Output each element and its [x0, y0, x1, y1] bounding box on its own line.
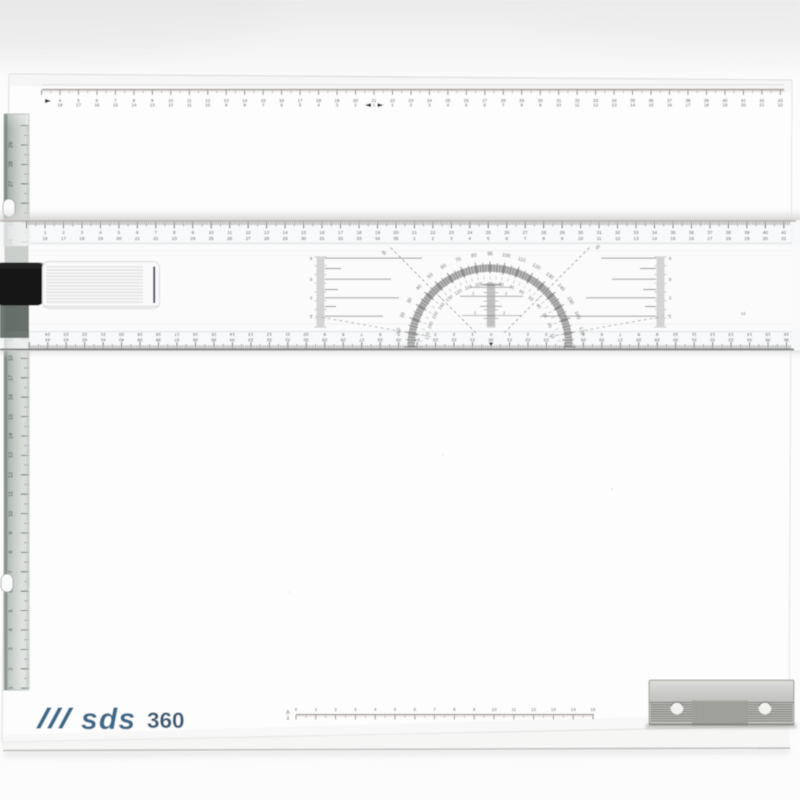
svg-text:28: 28 — [636, 338, 642, 343]
svg-text:3: 3 — [81, 230, 84, 235]
svg-text:2: 2 — [669, 314, 672, 319]
svg-text:6: 6 — [379, 332, 382, 337]
svg-text:x2: x2 — [741, 311, 746, 316]
svg-text:9: 9 — [191, 230, 194, 235]
svg-text:10: 10 — [673, 332, 679, 337]
svg-text:21: 21 — [100, 332, 106, 337]
svg-text:8: 8 — [173, 230, 176, 235]
svg-text:2: 2 — [9, 668, 15, 671]
svg-text:6: 6 — [600, 332, 603, 337]
svg-text:30: 30 — [673, 338, 679, 343]
svg-text:23: 23 — [63, 332, 69, 337]
svg-text:20: 20 — [741, 103, 747, 108]
svg-text:41: 41 — [100, 338, 106, 343]
svg-text:19: 19 — [98, 236, 104, 241]
svg-text:31: 31 — [691, 338, 697, 343]
svg-text:12: 12 — [593, 103, 599, 108]
svg-text:18: 18 — [79, 236, 85, 241]
svg-text:29: 29 — [654, 338, 660, 343]
svg-text:3: 3 — [434, 332, 437, 337]
svg-text:6: 6 — [505, 236, 508, 241]
svg-text:21: 21 — [759, 103, 765, 108]
svg-text:11: 11 — [285, 332, 290, 337]
svg-text:22: 22 — [451, 338, 457, 343]
svg-text:20: 20 — [763, 236, 769, 241]
svg-text:8: 8 — [310, 277, 313, 282]
svg-text:14: 14 — [9, 433, 15, 439]
svg-text:21: 21 — [507, 338, 513, 343]
svg-text:20: 20 — [116, 236, 122, 241]
svg-text:35: 35 — [211, 338, 217, 343]
svg-text:14: 14 — [282, 230, 288, 235]
svg-text:8: 8 — [9, 551, 15, 554]
svg-text:35: 35 — [670, 230, 676, 235]
svg-text:15: 15 — [648, 103, 654, 108]
svg-text:14: 14 — [571, 707, 576, 712]
svg-text:4: 4 — [468, 236, 471, 241]
svg-text:30: 30 — [301, 236, 307, 241]
svg-text:22: 22 — [82, 332, 88, 337]
svg-text:31: 31 — [285, 338, 291, 343]
svg-text:12: 12 — [246, 230, 252, 235]
svg-text:14: 14 — [131, 103, 137, 108]
svg-text:0: 0 — [489, 332, 492, 337]
svg-text:24: 24 — [190, 236, 196, 241]
svg-text:32: 32 — [338, 236, 344, 241]
svg-text:10: 10 — [205, 103, 211, 108]
svg-text:10: 10 — [9, 511, 15, 517]
svg-text:28: 28 — [9, 161, 15, 167]
svg-text:37: 37 — [174, 338, 180, 343]
svg-text:22: 22 — [525, 338, 531, 343]
svg-text:16: 16 — [689, 236, 695, 241]
svg-text:16: 16 — [94, 103, 100, 108]
svg-text:5: 5 — [487, 236, 490, 241]
svg-text:29: 29 — [322, 338, 328, 343]
svg-text:41: 41 — [781, 230, 787, 235]
svg-text:19: 19 — [744, 236, 750, 241]
svg-text:11: 11 — [691, 332, 696, 337]
svg-text:4: 4 — [9, 629, 15, 632]
svg-text:23: 23 — [449, 230, 455, 235]
svg-text:13: 13 — [264, 230, 270, 235]
svg-text:2: 2 — [62, 230, 65, 235]
svg-text:9: 9 — [656, 332, 659, 337]
svg-text:22: 22 — [430, 230, 436, 235]
svg-text:10: 10 — [303, 332, 309, 337]
svg-text:9: 9 — [323, 332, 326, 337]
svg-text:16: 16 — [9, 394, 15, 400]
svg-text:17: 17 — [76, 103, 82, 108]
svg-text:23: 23 — [433, 338, 439, 343]
svg-text:20: 20 — [393, 230, 399, 235]
svg-text:34: 34 — [375, 236, 381, 241]
svg-text:19: 19 — [722, 103, 728, 108]
svg-text:43: 43 — [63, 338, 69, 343]
svg-text:17: 17 — [707, 236, 713, 241]
svg-text:3: 3 — [669, 296, 672, 301]
svg-text:34: 34 — [747, 338, 753, 343]
svg-text:20: 20 — [488, 338, 494, 343]
svg-text:33: 33 — [728, 338, 734, 343]
svg-text:27: 27 — [246, 236, 252, 241]
svg-text:1: 1 — [471, 332, 474, 337]
svg-text:33: 33 — [356, 236, 362, 241]
svg-text:13: 13 — [551, 707, 556, 712]
svg-text:11: 11 — [575, 103, 580, 108]
svg-text:2: 2 — [452, 332, 455, 337]
svg-text:16: 16 — [42, 236, 48, 241]
svg-text:26: 26 — [504, 230, 510, 235]
svg-text:15: 15 — [670, 236, 676, 241]
svg-text:sds: sds — [81, 703, 136, 736]
svg-text:12: 12 — [266, 332, 272, 337]
svg-text:1: 1 — [44, 230, 47, 235]
svg-text:27: 27 — [359, 338, 365, 343]
svg-text:7: 7 — [154, 230, 157, 235]
svg-text:18: 18 — [356, 230, 362, 235]
svg-text:26: 26 — [227, 236, 233, 241]
svg-text:21: 21 — [470, 338, 476, 343]
svg-text:42: 42 — [82, 338, 88, 343]
svg-text:25: 25 — [580, 338, 586, 343]
svg-text:29: 29 — [560, 230, 566, 235]
svg-text:19: 19 — [375, 230, 381, 235]
svg-text:3: 3 — [9, 648, 15, 651]
svg-text:18: 18 — [704, 103, 710, 108]
svg-text:11: 11 — [597, 236, 602, 241]
svg-text:32: 32 — [710, 338, 716, 343]
svg-text:17: 17 — [9, 375, 15, 381]
svg-text:22: 22 — [153, 236, 159, 241]
svg-text:7: 7 — [360, 332, 363, 337]
svg-text:A: A — [286, 710, 290, 716]
svg-text:3: 3 — [450, 236, 453, 241]
svg-text:33: 33 — [633, 230, 639, 235]
svg-text:26: 26 — [377, 338, 383, 343]
svg-text:10: 10 — [578, 236, 584, 241]
svg-text:17: 17 — [685, 103, 691, 108]
svg-text:24: 24 — [45, 332, 51, 337]
svg-text:16: 16 — [667, 103, 673, 108]
svg-text:14: 14 — [747, 332, 753, 337]
svg-text:14: 14 — [630, 103, 636, 108]
svg-text:11: 11 — [227, 230, 232, 235]
svg-text:28: 28 — [264, 236, 270, 241]
svg-text:35: 35 — [765, 338, 771, 343]
svg-text:39: 39 — [137, 338, 143, 343]
svg-text:20: 20 — [119, 332, 125, 337]
svg-text:12: 12 — [9, 472, 15, 478]
svg-text:25: 25 — [486, 230, 492, 235]
svg-text:21: 21 — [135, 236, 141, 241]
svg-text:9: 9 — [561, 236, 564, 241]
svg-text:32: 32 — [615, 230, 621, 235]
svg-text:8: 8 — [542, 236, 545, 241]
svg-text:40: 40 — [119, 338, 125, 343]
svg-text:18: 18 — [57, 103, 63, 108]
svg-text:25: 25 — [396, 338, 402, 343]
svg-text:13: 13 — [728, 332, 734, 337]
svg-text:17: 17 — [174, 332, 180, 337]
svg-text:3: 3 — [545, 332, 548, 337]
svg-text:90: 90 — [487, 252, 493, 258]
svg-text:36: 36 — [784, 338, 790, 343]
svg-text:15: 15 — [301, 230, 307, 235]
svg-text:24: 24 — [467, 230, 473, 235]
svg-text:9: 9 — [669, 256, 672, 261]
svg-text:9: 9 — [310, 256, 313, 261]
svg-text:12: 12 — [615, 236, 621, 241]
svg-text:27: 27 — [9, 181, 15, 187]
svg-text:18: 18 — [156, 332, 162, 337]
svg-text:15: 15 — [591, 707, 596, 712]
svg-text:12: 12 — [168, 103, 174, 108]
svg-text:3: 3 — [310, 296, 313, 301]
svg-text:23: 23 — [543, 338, 549, 343]
svg-text:16: 16 — [319, 230, 325, 235]
svg-text:30: 30 — [578, 230, 584, 235]
svg-text:21: 21 — [412, 230, 418, 235]
svg-text:31: 31 — [319, 236, 325, 241]
svg-text:10: 10 — [556, 103, 562, 108]
svg-text:27: 27 — [523, 230, 529, 235]
svg-text:25: 25 — [209, 236, 215, 241]
svg-text:15: 15 — [765, 332, 771, 337]
svg-text:31: 31 — [596, 230, 602, 235]
svg-text:28: 28 — [541, 230, 547, 235]
svg-text:13: 13 — [612, 103, 618, 108]
svg-text:11: 11 — [512, 707, 517, 712]
svg-text:21: 21 — [781, 236, 787, 241]
svg-text:33: 33 — [248, 338, 254, 343]
svg-text:2: 2 — [432, 236, 435, 241]
svg-text:37: 37 — [707, 230, 713, 235]
svg-text:29: 29 — [9, 142, 15, 148]
svg-text:10: 10 — [492, 707, 497, 712]
svg-text:35: 35 — [393, 236, 399, 241]
svg-text:12: 12 — [531, 707, 536, 712]
svg-text:8: 8 — [342, 332, 345, 337]
svg-text:1: 1 — [9, 687, 15, 690]
svg-text:11: 11 — [187, 103, 192, 108]
svg-text:13: 13 — [150, 103, 156, 108]
svg-text:27: 27 — [617, 338, 623, 343]
svg-text:1: 1 — [508, 332, 511, 337]
svg-text:7: 7 — [619, 332, 622, 337]
svg-text:36: 36 — [689, 230, 695, 235]
svg-text:14: 14 — [229, 332, 235, 337]
svg-text:360: 360 — [147, 708, 185, 733]
svg-text:8: 8 — [637, 332, 640, 337]
svg-text:36: 36 — [193, 338, 199, 343]
svg-text:2: 2 — [526, 332, 529, 337]
svg-text:5: 5 — [118, 230, 121, 235]
svg-text:40: 40 — [763, 230, 769, 235]
svg-text:12: 12 — [710, 332, 716, 337]
svg-text:13: 13 — [248, 332, 254, 337]
svg-text:4: 4 — [99, 230, 102, 235]
svg-text:10: 10 — [209, 230, 215, 235]
svg-text:14: 14 — [652, 236, 658, 241]
svg-text:39: 39 — [744, 230, 750, 235]
svg-text:17: 17 — [338, 230, 344, 235]
svg-text:18: 18 — [726, 236, 732, 241]
svg-text:7: 7 — [9, 571, 15, 574]
svg-text:16: 16 — [784, 332, 790, 337]
svg-text:44: 44 — [45, 338, 51, 343]
svg-text:15: 15 — [113, 103, 119, 108]
svg-text:2: 2 — [310, 314, 313, 319]
svg-text:28: 28 — [340, 338, 346, 343]
svg-text:32: 32 — [266, 338, 272, 343]
svg-text:29: 29 — [282, 236, 288, 241]
svg-text:1: 1 — [413, 236, 416, 241]
svg-text:22: 22 — [778, 103, 784, 108]
svg-text:26: 26 — [599, 338, 605, 343]
svg-text:17: 17 — [61, 236, 67, 241]
svg-text:5: 5 — [9, 610, 15, 613]
svg-text:15: 15 — [9, 414, 15, 420]
svg-text:15: 15 — [211, 332, 217, 337]
svg-text:30: 30 — [303, 338, 309, 343]
svg-text:34: 34 — [652, 230, 658, 235]
svg-text:19: 19 — [137, 332, 143, 337]
svg-text:16: 16 — [193, 332, 199, 337]
svg-text:23: 23 — [172, 236, 178, 241]
svg-text:34: 34 — [229, 338, 235, 343]
svg-text:38: 38 — [726, 230, 732, 235]
svg-text:38: 38 — [156, 338, 162, 343]
svg-text:8: 8 — [669, 277, 672, 282]
svg-text:9: 9 — [9, 532, 15, 535]
svg-text:6: 6 — [136, 230, 139, 235]
svg-text:13: 13 — [633, 236, 639, 241]
svg-text:7: 7 — [524, 236, 527, 241]
svg-text:13: 13 — [9, 452, 15, 458]
svg-text:11: 11 — [9, 491, 15, 497]
